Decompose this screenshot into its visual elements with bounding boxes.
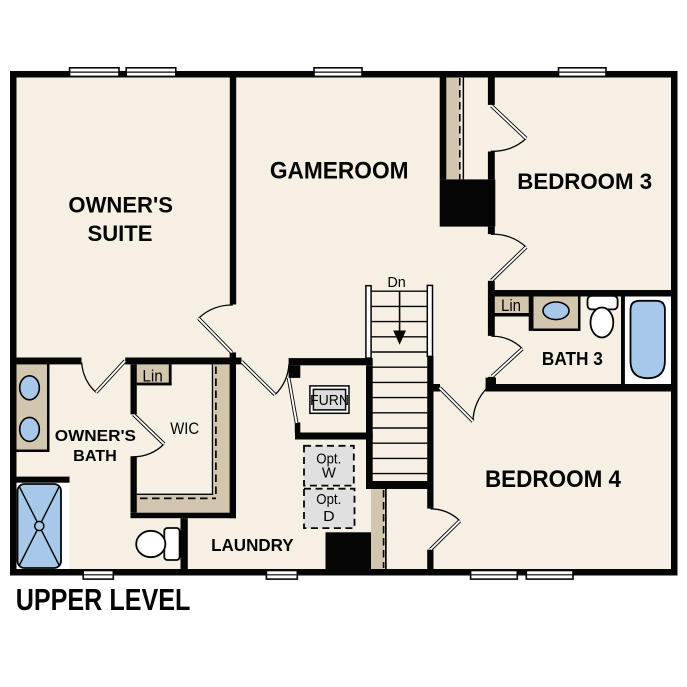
svg-text:Opt.: Opt. (316, 492, 341, 508)
svg-text:BATH 3: BATH 3 (542, 349, 603, 369)
svg-text:Lin: Lin (501, 296, 521, 315)
svg-text:Dn: Dn (387, 275, 406, 291)
svg-text:UPPER LEVEL: UPPER LEVEL (16, 584, 191, 617)
svg-text:OWNER'S: OWNER'S (68, 193, 173, 218)
svg-text:LAUNDRY: LAUNDRY (211, 535, 294, 555)
svg-text:WIC: WIC (170, 420, 199, 438)
svg-text:BEDROOM 4: BEDROOM 4 (485, 467, 622, 493)
svg-text:D: D (323, 509, 335, 525)
svg-text:GAMEROOM: GAMEROOM (270, 159, 409, 185)
svg-text:BEDROOM 3: BEDROOM 3 (517, 169, 652, 194)
svg-text:BATH: BATH (73, 448, 117, 465)
svg-text:OWNER'S: OWNER'S (55, 428, 136, 445)
svg-text:W: W (322, 466, 337, 482)
svg-text:Lin: Lin (142, 367, 163, 386)
svg-text:FURN: FURN (310, 393, 349, 409)
svg-text:SUITE: SUITE (88, 221, 153, 246)
